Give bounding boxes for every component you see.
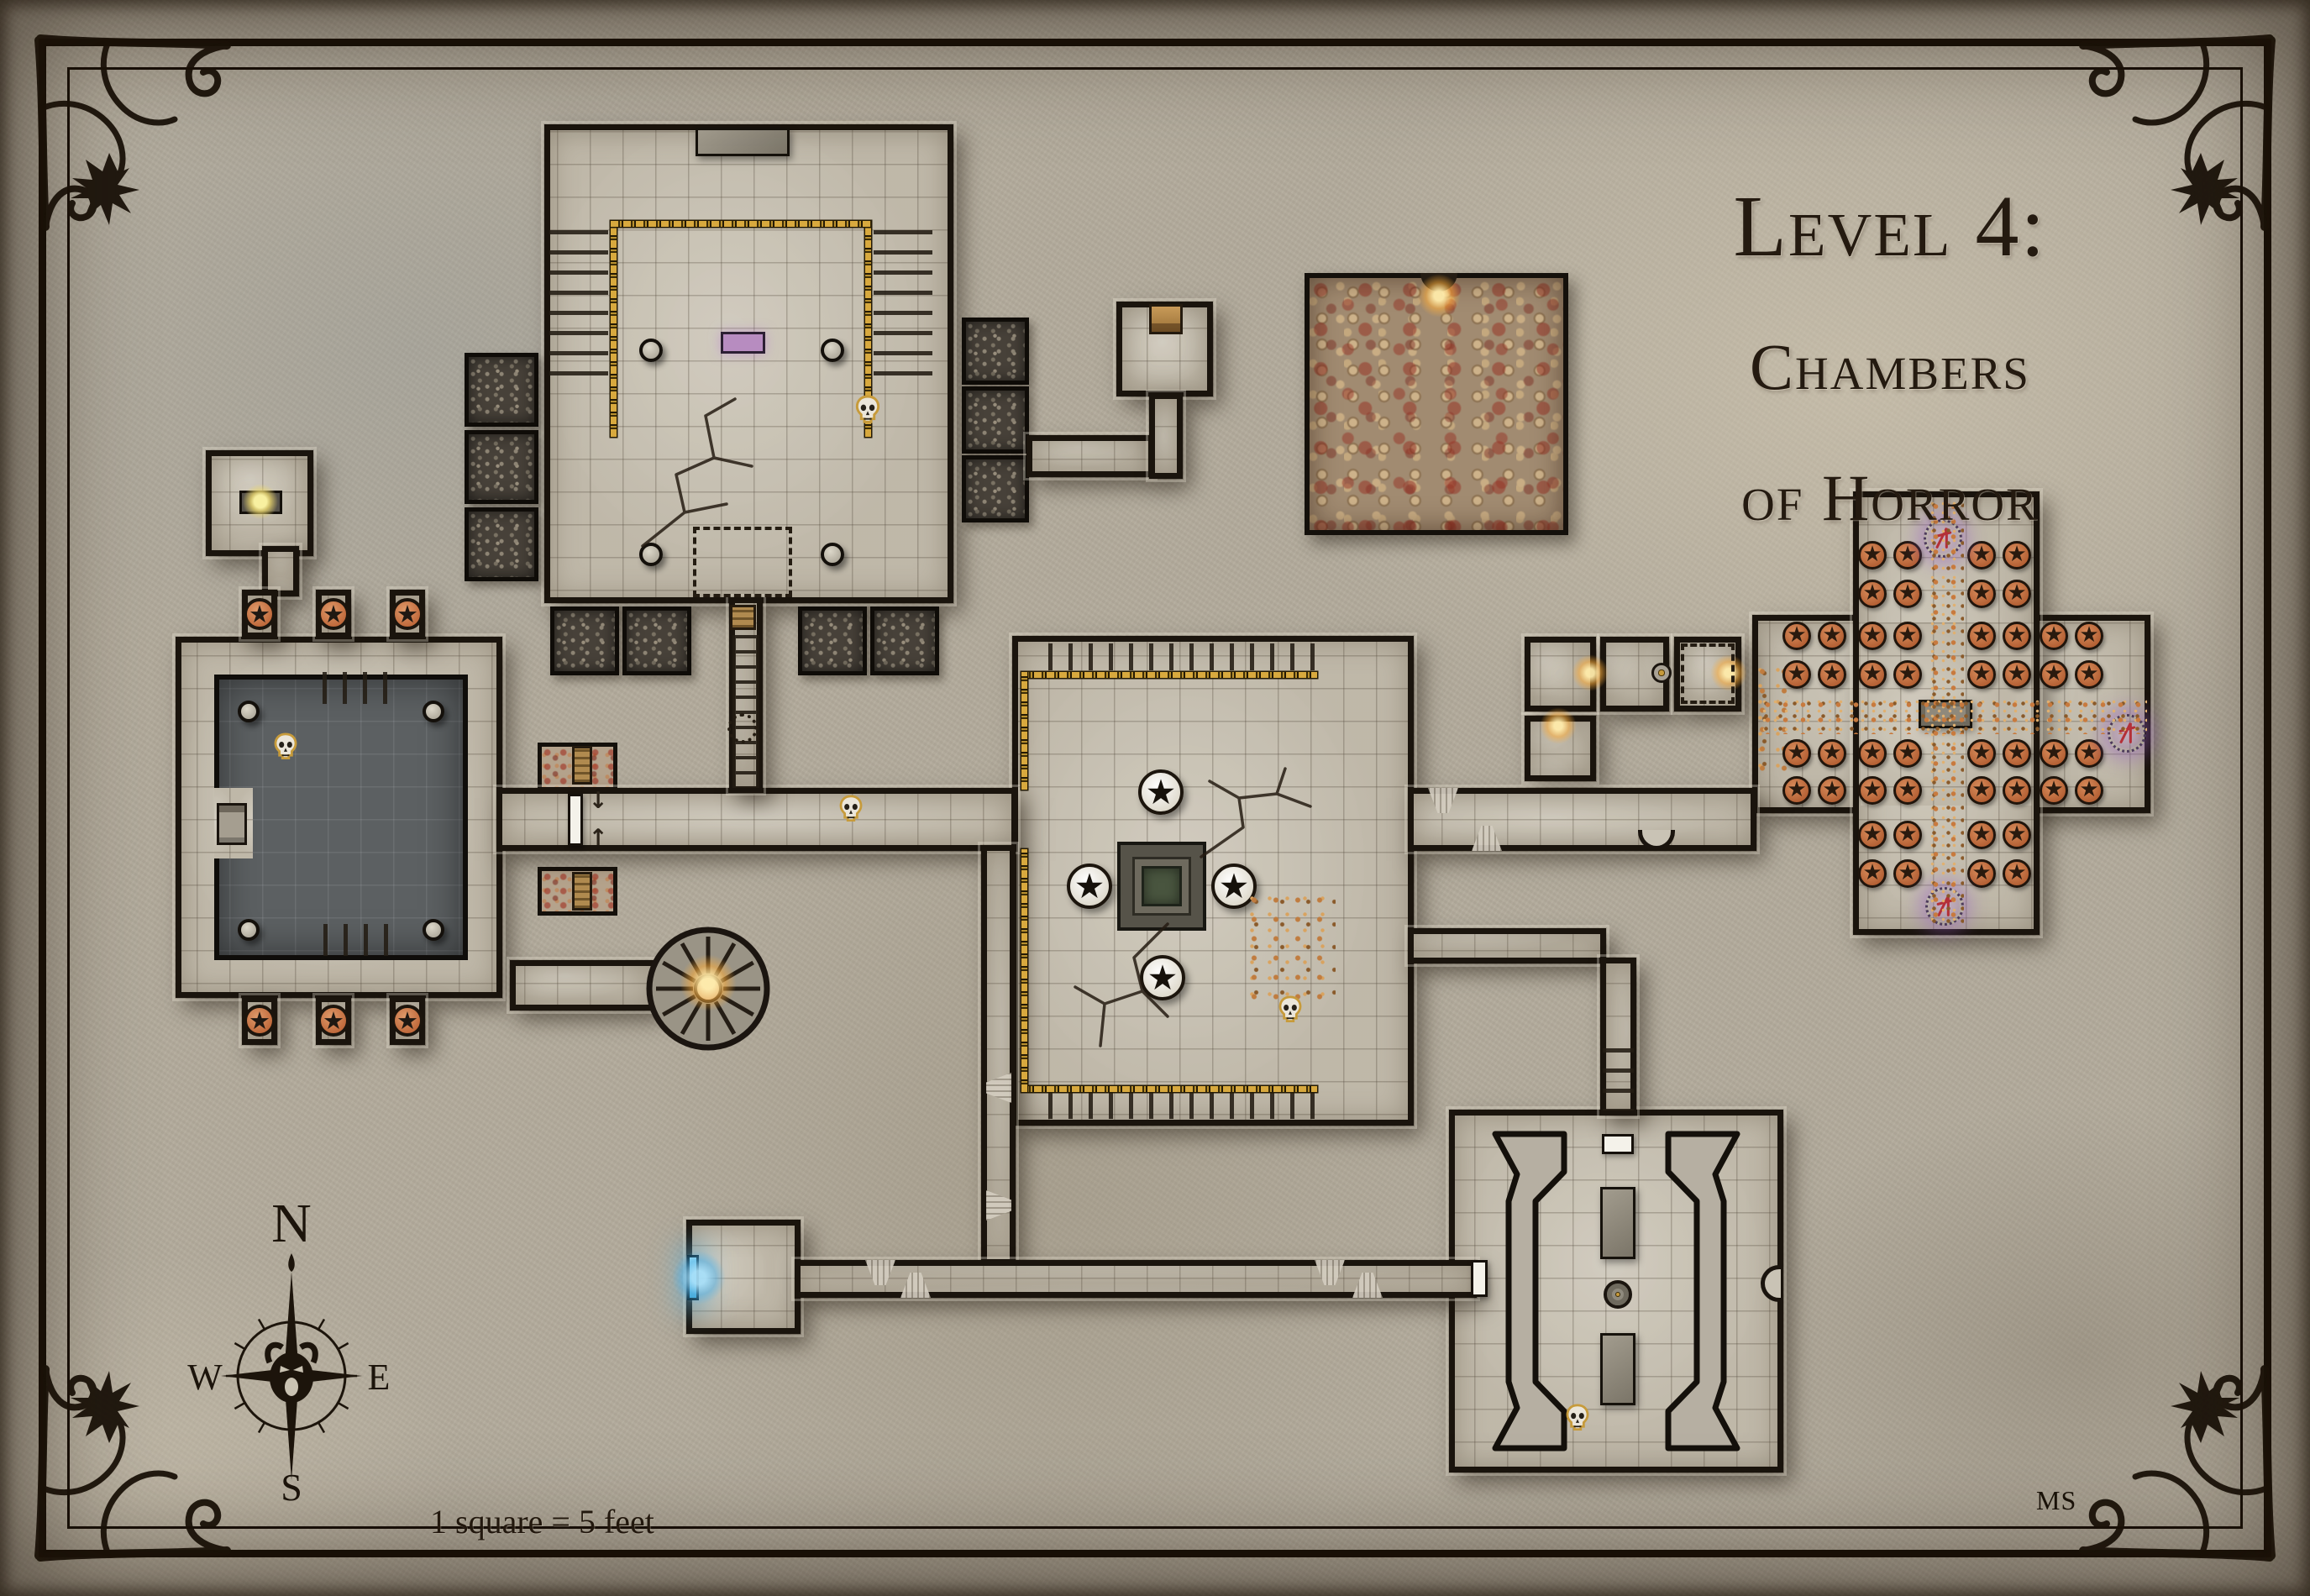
- compass-north-label: N: [271, 1193, 312, 1254]
- artist-signature: MS: [2036, 1485, 2076, 1516]
- trap-sigil: ★: [391, 1005, 423, 1037]
- trap-plate: ★: [1782, 776, 1811, 805]
- ladder: [732, 635, 759, 788]
- map-title-line1: Level 4:: [1688, 176, 2092, 276]
- trap-plate: ★: [2075, 739, 2103, 768]
- sigil-disc: ★: [1138, 769, 1184, 815]
- trap-plate: ★: [2003, 821, 2031, 849]
- bone-pit: [622, 606, 691, 675]
- stairs: [549, 230, 608, 391]
- trap-sigil: ★: [318, 598, 349, 630]
- stairs: [874, 230, 932, 391]
- compass-east-label: E: [368, 1357, 391, 1398]
- rubble-path: [1759, 697, 2147, 734]
- stone-door: [1471, 1260, 1488, 1297]
- violet-altar: [721, 332, 765, 354]
- stone-door: [1602, 1134, 1634, 1154]
- skull-marker: [851, 395, 885, 428]
- trap-plate: ★: [1893, 739, 1922, 768]
- pillar: [423, 919, 444, 941]
- floor-crack: [626, 386, 811, 554]
- trap-plate: ★: [2003, 541, 2031, 570]
- bone-pit: [962, 318, 1029, 385]
- dungeon-map-page: ★★★★★★↓↑★★★★★★★★★★★★★★★★★★★★★★★★★★★★★★★★…: [0, 0, 2310, 1596]
- trap-sigil: ★: [244, 598, 276, 630]
- trap-plate: ★: [2040, 622, 2068, 650]
- chest-stub: [1149, 393, 1183, 479]
- trap-plate: ★: [2003, 739, 2031, 768]
- orb-room-stub: [262, 546, 299, 596]
- trap-plate: ★: [2075, 776, 2103, 805]
- portal-glow: [672, 1251, 726, 1305]
- skull-marker: [835, 795, 867, 827]
- map-title-line3: of Horror: [1688, 460, 2092, 536]
- trap-plate: ★: [2040, 739, 2068, 768]
- trap-plate: ★: [1967, 739, 1996, 768]
- trap-plate: ★: [1818, 776, 1846, 805]
- trap-plate: ★: [1858, 622, 1887, 650]
- floor-drain: [1604, 1280, 1632, 1309]
- hidden-trapdoor: [727, 713, 758, 743]
- trap-plate: ★: [1967, 541, 1996, 570]
- trap-plate: ★: [2075, 622, 2103, 650]
- trap-plate: ★: [2003, 776, 2031, 805]
- bone-pit: [962, 386, 1029, 454]
- trap-sigil: ★: [391, 598, 423, 630]
- skull-marker: [1562, 1404, 1593, 1436]
- trap-plate: ★: [1893, 541, 1922, 570]
- spiral-corridor: [510, 960, 657, 1011]
- stairs: [1048, 1092, 1315, 1119]
- hidden-area: [1681, 643, 1735, 704]
- chest: [1149, 304, 1183, 334]
- trap-sigil: ★: [318, 1005, 349, 1037]
- stone-door: [568, 794, 583, 846]
- bone-debris: [1243, 890, 1336, 1008]
- glowing-orb: [242, 483, 279, 520]
- spiral-light: [680, 954, 737, 1011]
- trap-plate: ★: [2075, 660, 2103, 689]
- stairs: [1603, 1048, 1634, 1110]
- bone-pit: [870, 606, 939, 675]
- floor-crack: [1193, 760, 1336, 869]
- trap-plate: ★: [2003, 660, 2031, 689]
- gold-railing: [1021, 672, 1317, 678]
- wooden-door: [572, 872, 592, 911]
- trap-plate: ★: [1893, 859, 1922, 888]
- corridor-east: [1408, 788, 1756, 851]
- trap-plate: ★: [1893, 776, 1922, 805]
- pillar: [639, 339, 663, 362]
- trap-plate: ★: [1967, 660, 1996, 689]
- trap-sigil: ★: [244, 1005, 276, 1037]
- map-title-line2: Chambers: [1688, 329, 2092, 405]
- bone-pit: [798, 606, 867, 675]
- pillar: [821, 543, 844, 566]
- gold-railing: [1021, 1086, 1317, 1092]
- trap-plate: ★: [1818, 660, 1846, 689]
- trap-plate: ★: [1893, 660, 1922, 689]
- gold-railing: [1021, 849, 1027, 1092]
- bone-pit: [962, 455, 1029, 522]
- trap-plate: ★: [1818, 739, 1846, 768]
- compass-rose: N S W E: [186, 1191, 396, 1504]
- skull-marker: [1274, 995, 1306, 1027]
- bone-pit: [550, 606, 619, 675]
- trap-plate: ★: [1858, 821, 1887, 849]
- pillar: [821, 339, 844, 362]
- torch-light: [1540, 707, 1577, 744]
- corridor-south-east: [1408, 928, 1606, 963]
- trap-plate: ★: [1818, 622, 1846, 650]
- stone-block: [1600, 1187, 1635, 1259]
- trap-plate: ★: [1782, 622, 1811, 650]
- trap-plate: ★: [2040, 776, 2068, 805]
- trap-plate: ★: [1893, 580, 1922, 608]
- floor-crack: [1067, 916, 1184, 1058]
- stairs: [323, 672, 398, 704]
- pillar: [238, 919, 260, 941]
- compass-west-label: W: [187, 1357, 223, 1398]
- stone-table: [696, 128, 790, 156]
- sigil-disc: ★: [1067, 864, 1112, 909]
- wooden-door: [730, 605, 756, 630]
- wooden-door: [572, 746, 592, 785]
- skull-marker: [270, 732, 302, 764]
- trap-plate: ★: [1967, 580, 1996, 608]
- trap-plate: ★: [1782, 660, 1811, 689]
- stair-arrow: ↑: [588, 825, 608, 848]
- trap-plate: ★: [2003, 622, 2031, 650]
- trap-plate: ★: [1967, 859, 1996, 888]
- trap-plate: ★: [1858, 776, 1887, 805]
- trap-plate: ★: [1967, 776, 1996, 805]
- bone-pit: [465, 430, 538, 504]
- gold-railing: [611, 221, 617, 437]
- gold-railing: [611, 221, 871, 227]
- wall-disc: [1651, 663, 1672, 683]
- corner-ornament: [2076, 1362, 2278, 1564]
- trap-plate: ★: [1858, 660, 1887, 689]
- corner-ornament: [2076, 32, 2278, 234]
- trap-plate: ★: [1967, 622, 1996, 650]
- pillar: [423, 701, 444, 722]
- trap-plate: ★: [2003, 859, 2031, 888]
- pit-east-corridor: [1026, 435, 1154, 477]
- stairs: [1048, 643, 1315, 670]
- torch-light: [1572, 654, 1609, 691]
- gold-railing: [1021, 672, 1027, 790]
- stone-block: [1600, 1333, 1635, 1405]
- trap-plate: ★: [1858, 541, 1887, 570]
- trap-plate: ★: [1858, 859, 1887, 888]
- bone-pit: [465, 353, 538, 427]
- stair-arrow: ↓: [588, 788, 608, 811]
- bone-pit: [465, 507, 538, 581]
- trap-plate: ★: [1858, 739, 1887, 768]
- trap-plate: ★: [1967, 821, 1996, 849]
- throne: [217, 803, 247, 845]
- trap-plate: ★: [1782, 739, 1811, 768]
- stairs: [323, 924, 399, 956]
- torch-light: [1417, 274, 1461, 318]
- pillar: [238, 701, 260, 722]
- trap-plate: ★: [1858, 580, 1887, 608]
- trap-plate: ★: [1893, 622, 1922, 650]
- trap-plate: ★: [1893, 821, 1922, 849]
- corner-ornament: [32, 32, 234, 234]
- scale-label: 1 square = 5 feet: [430, 1502, 654, 1541]
- trap-plate: ★: [2040, 660, 2068, 689]
- trap-plate: ★: [2003, 580, 2031, 608]
